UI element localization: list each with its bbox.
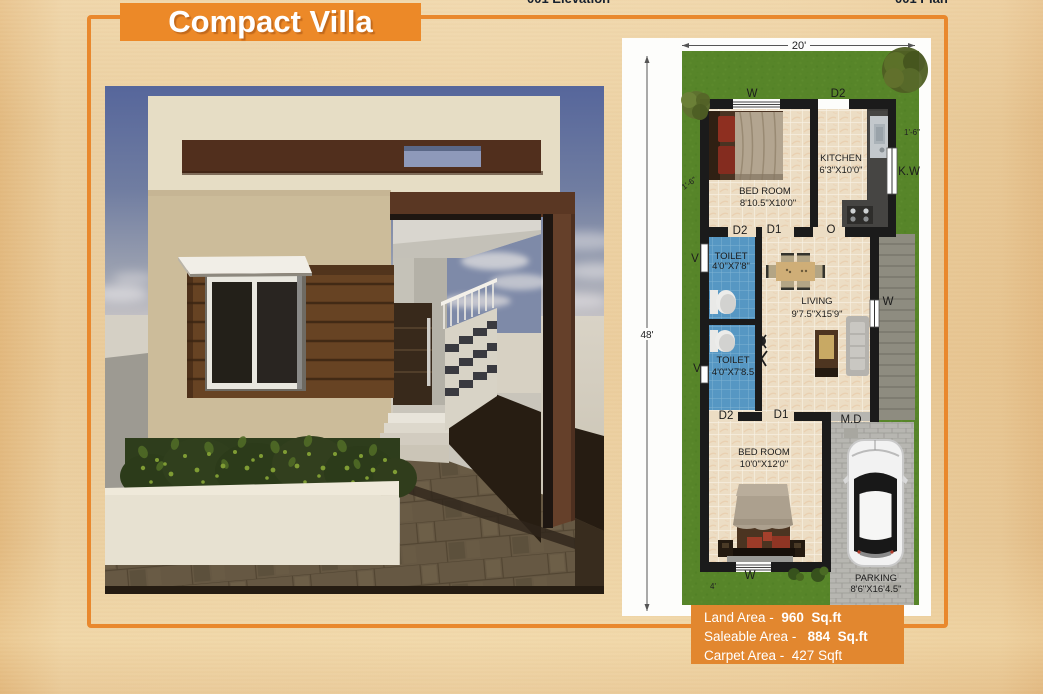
- svg-text:W: W: [747, 88, 758, 100]
- svg-text:BED ROOM: BED ROOM: [738, 447, 790, 458]
- svg-text:8'10.5"X10'0": 8'10.5"X10'0": [740, 198, 796, 209]
- svg-text:K.W: K.W: [898, 166, 920, 178]
- svg-text:D2: D2: [733, 225, 748, 237]
- svg-text:4'0"X7'8.5: 4'0"X7'8.5: [712, 367, 754, 378]
- svg-text:20': 20': [792, 40, 806, 52]
- svg-text:M.D: M.D: [840, 414, 861, 426]
- svg-text:D2: D2: [719, 410, 734, 422]
- svg-text:TOILET: TOILET: [716, 355, 749, 366]
- svg-text:KITCHEN: KITCHEN: [820, 153, 862, 164]
- svg-text:LIVING: LIVING: [801, 296, 832, 307]
- svg-text:W: W: [883, 296, 894, 308]
- svg-text:BED ROOM: BED ROOM: [739, 186, 791, 197]
- svg-text:D1: D1: [774, 409, 789, 421]
- svg-text:V: V: [691, 253, 699, 265]
- svg-text:V: V: [693, 363, 701, 375]
- svg-text:1'-6": 1'-6": [904, 128, 920, 137]
- svg-text:4': 4': [710, 582, 716, 591]
- svg-text:D1: D1: [767, 224, 782, 236]
- svg-text:D2: D2: [831, 88, 846, 100]
- svg-text:48': 48': [640, 330, 653, 341]
- svg-text:4'0"X7'8": 4'0"X7'8": [712, 261, 750, 272]
- svg-text:10'0"X12'0": 10'0"X12'0": [740, 459, 788, 470]
- svg-text:O: O: [827, 224, 836, 236]
- svg-text:9'7.5"X15'9": 9'7.5"X15'9": [791, 309, 842, 320]
- svg-text:W: W: [745, 570, 756, 582]
- svg-text:PARKING: PARKING: [855, 573, 897, 584]
- svg-text:6'3"X10'0": 6'3"X10'0": [819, 165, 862, 176]
- svg-text:8'6"X16'4.5": 8'6"X16'4.5": [850, 584, 901, 595]
